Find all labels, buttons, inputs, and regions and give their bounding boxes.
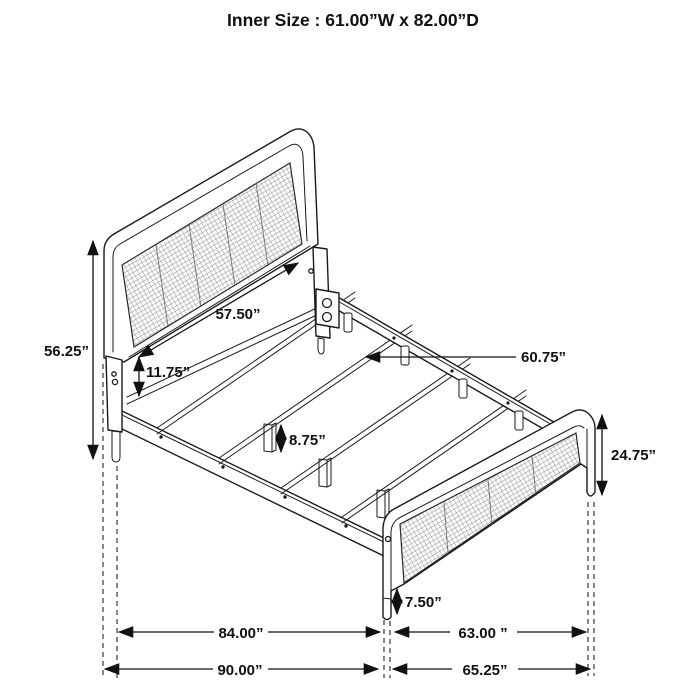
slat-hook-3: [459, 379, 467, 398]
headboard-left-leg-foot: [112, 431, 120, 462]
dim-footboard-height: 24.75”: [611, 447, 656, 464]
headboard: [104, 129, 339, 462]
dim-headboard-width: 57.50”: [215, 306, 260, 323]
headboard-left-leg-post: [106, 356, 122, 432]
headboard-left-foot-joint: [112, 379, 117, 384]
headboard-left-leg: [106, 356, 122, 462]
slat-hook-2: [401, 346, 409, 365]
slat-hook-4: [515, 411, 523, 430]
footboard-leg-joint: [386, 537, 391, 542]
dim-slat-length: 60.75”: [521, 349, 566, 366]
headboard-left-leg-bolt: [112, 372, 116, 376]
headboard-right-leg: [309, 247, 339, 354]
support-leg-2: [319, 458, 331, 487]
slat-hooks: [344, 313, 523, 430]
slat-3: [281, 358, 470, 494]
support-leg-1: [264, 423, 276, 452]
bracket-hole-bottom: [323, 313, 332, 322]
side-rail-far-edge: [336, 300, 585, 444]
dim-footboard-inner-width: 63.00 ”: [458, 625, 507, 642]
bed-dimension-diagram: Inner Size : 61.00”W x 82.00”D: [0, 0, 700, 700]
dim-overall-length: 90.00”: [217, 662, 262, 679]
dim-footboard-clearance: 7.50”: [405, 594, 442, 611]
footboard: [383, 410, 595, 620]
dim-overall-width: 65.25”: [462, 662, 507, 679]
dim-headboard-gap: 11.75”: [146, 364, 190, 381]
diagram-title: Inner Size : 61.00”W x 82.00”D: [227, 10, 479, 30]
dim-side-rail-length: 84.00”: [218, 625, 263, 642]
slat-hook-1: [344, 313, 352, 332]
rail-bracket: [316, 289, 339, 328]
bed-deck: [120, 292, 585, 558]
support-leg-3: [377, 489, 389, 518]
dim-headboard-height: 56.25”: [44, 343, 89, 360]
headboard-right-leg-bolt: [309, 269, 313, 273]
diagram-canvas: Inner Size : 61.00”W x 82.00”D: [0, 0, 700, 700]
bracket-hole-top: [323, 299, 332, 308]
dim-support-leg-height: 8.75”: [289, 432, 326, 449]
headboard-right-leg-foot: [318, 338, 324, 354]
